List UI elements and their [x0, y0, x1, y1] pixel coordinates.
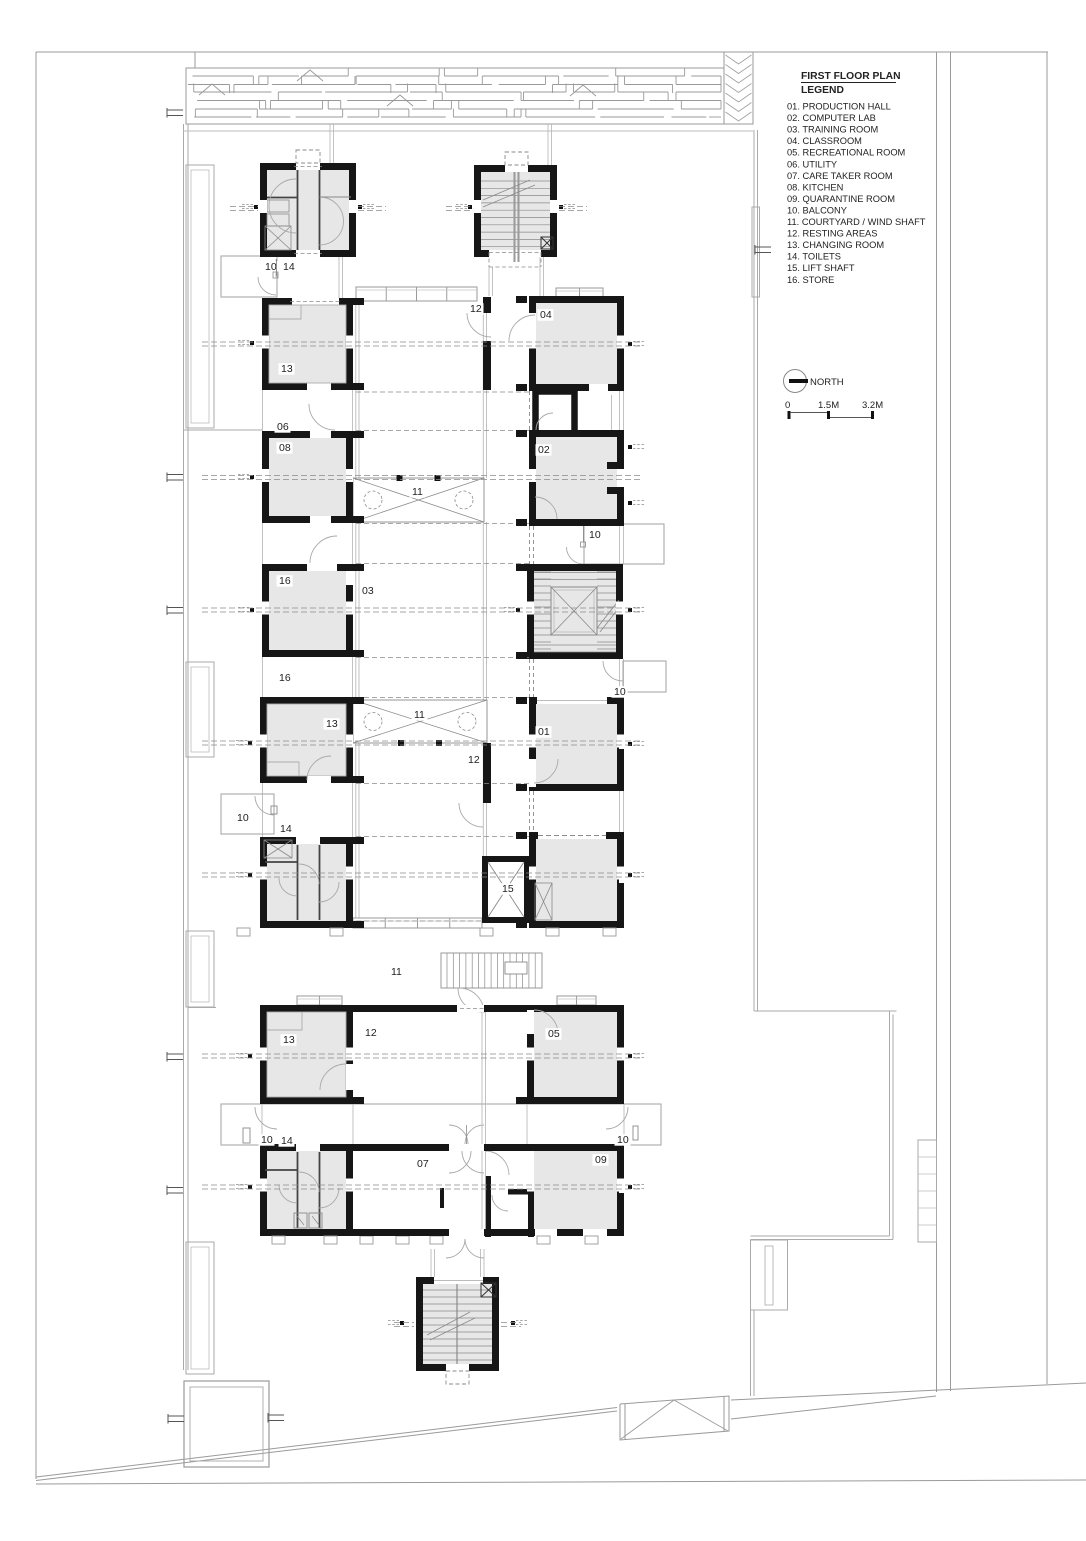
svg-text:02: 02 — [538, 444, 550, 456]
svg-text:13: 13 — [326, 718, 338, 730]
svg-text:04: 04 — [540, 309, 552, 321]
svg-text:01: 01 — [538, 726, 550, 738]
svg-text:13: 13 — [281, 363, 293, 375]
svg-text:11: 11 — [414, 709, 425, 721]
svg-text:16: 16 — [279, 672, 291, 684]
svg-text:07: 07 — [417, 1158, 429, 1170]
svg-text:14: 14 — [283, 261, 295, 273]
svg-text:10: 10 — [265, 261, 277, 273]
svg-text:10: 10 — [261, 1134, 273, 1146]
svg-text:16. STORE: 16. STORE — [787, 275, 834, 285]
svg-text:01. PRODUCTION HALL: 01. PRODUCTION HALL — [787, 102, 891, 112]
svg-text:04. CLASSROOM: 04. CLASSROOM — [787, 136, 862, 146]
svg-text:FIRST FLOOR PLAN: FIRST FLOOR PLAN — [801, 71, 901, 82]
svg-text:11: 11 — [391, 966, 402, 978]
svg-text:12: 12 — [470, 303, 482, 315]
svg-text:12: 12 — [365, 1027, 377, 1039]
svg-text:10: 10 — [617, 1134, 629, 1146]
svg-text:14: 14 — [281, 1135, 293, 1147]
svg-text:03: 03 — [362, 585, 374, 597]
svg-text:02. COMPUTER LAB: 02. COMPUTER LAB — [787, 113, 876, 123]
svg-text:09: 09 — [595, 1154, 607, 1166]
svg-text:3.2M: 3.2M — [862, 400, 883, 411]
svg-text:15: 15 — [502, 883, 514, 895]
svg-text:10: 10 — [589, 529, 601, 541]
svg-text:LEGEND: LEGEND — [801, 85, 844, 96]
svg-text:09. QUARANTINE ROOM: 09. QUARANTINE ROOM — [787, 194, 895, 204]
svg-text:03. TRAINING ROOM: 03. TRAINING ROOM — [787, 125, 878, 135]
svg-text:15. LIFT SHAFT: 15. LIFT SHAFT — [787, 263, 855, 273]
svg-text:06. UTILITY: 06. UTILITY — [787, 159, 837, 169]
svg-text:14: 14 — [280, 823, 292, 835]
svg-text:05: 05 — [548, 1028, 560, 1040]
svg-text:05. RECREATIONAL ROOM: 05. RECREATIONAL ROOM — [787, 148, 905, 158]
svg-text:0: 0 — [785, 400, 790, 411]
svg-text:16: 16 — [279, 575, 291, 587]
svg-text:13: 13 — [283, 1034, 295, 1046]
svg-text:06: 06 — [277, 421, 289, 433]
svg-text:11: 11 — [412, 486, 423, 498]
svg-text:08. KITCHEN: 08. KITCHEN — [787, 182, 843, 192]
svg-text:10: 10 — [614, 686, 626, 698]
svg-text:1.5M: 1.5M — [818, 400, 839, 411]
svg-text:07. CARE TAKER ROOM: 07. CARE TAKER ROOM — [787, 171, 893, 181]
svg-text:13. CHANGING ROOM: 13. CHANGING ROOM — [787, 240, 884, 250]
svg-text:12: 12 — [468, 754, 480, 766]
svg-text:12. RESTING AREAS: 12. RESTING AREAS — [787, 229, 877, 239]
svg-text:10. BALCONY: 10. BALCONY — [787, 205, 847, 215]
svg-text:11. COURTYARD / WIND SHAFT: 11. COURTYARD / WIND SHAFT — [787, 217, 926, 227]
svg-text:08: 08 — [279, 442, 291, 454]
svg-text:10: 10 — [237, 812, 249, 824]
svg-text:14. TOILETS: 14. TOILETS — [787, 252, 841, 262]
svg-text:NORTH: NORTH — [810, 377, 844, 388]
